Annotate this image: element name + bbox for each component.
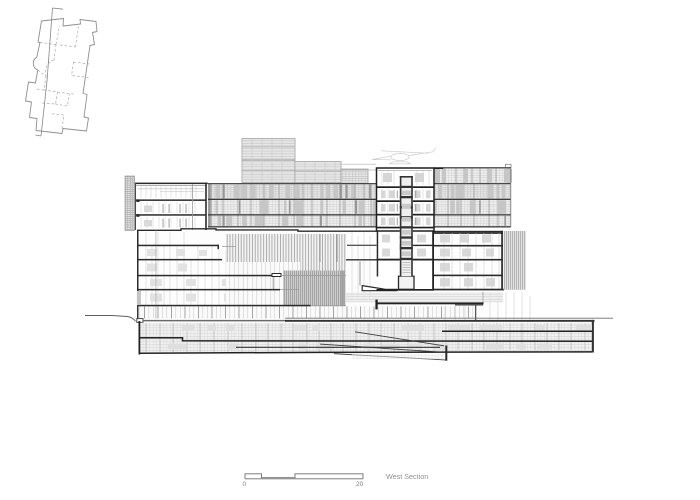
svg-text:West Section: West Section [386,472,428,481]
svg-text:0: 0 [243,481,247,488]
svg-text:20: 20 [356,481,364,488]
